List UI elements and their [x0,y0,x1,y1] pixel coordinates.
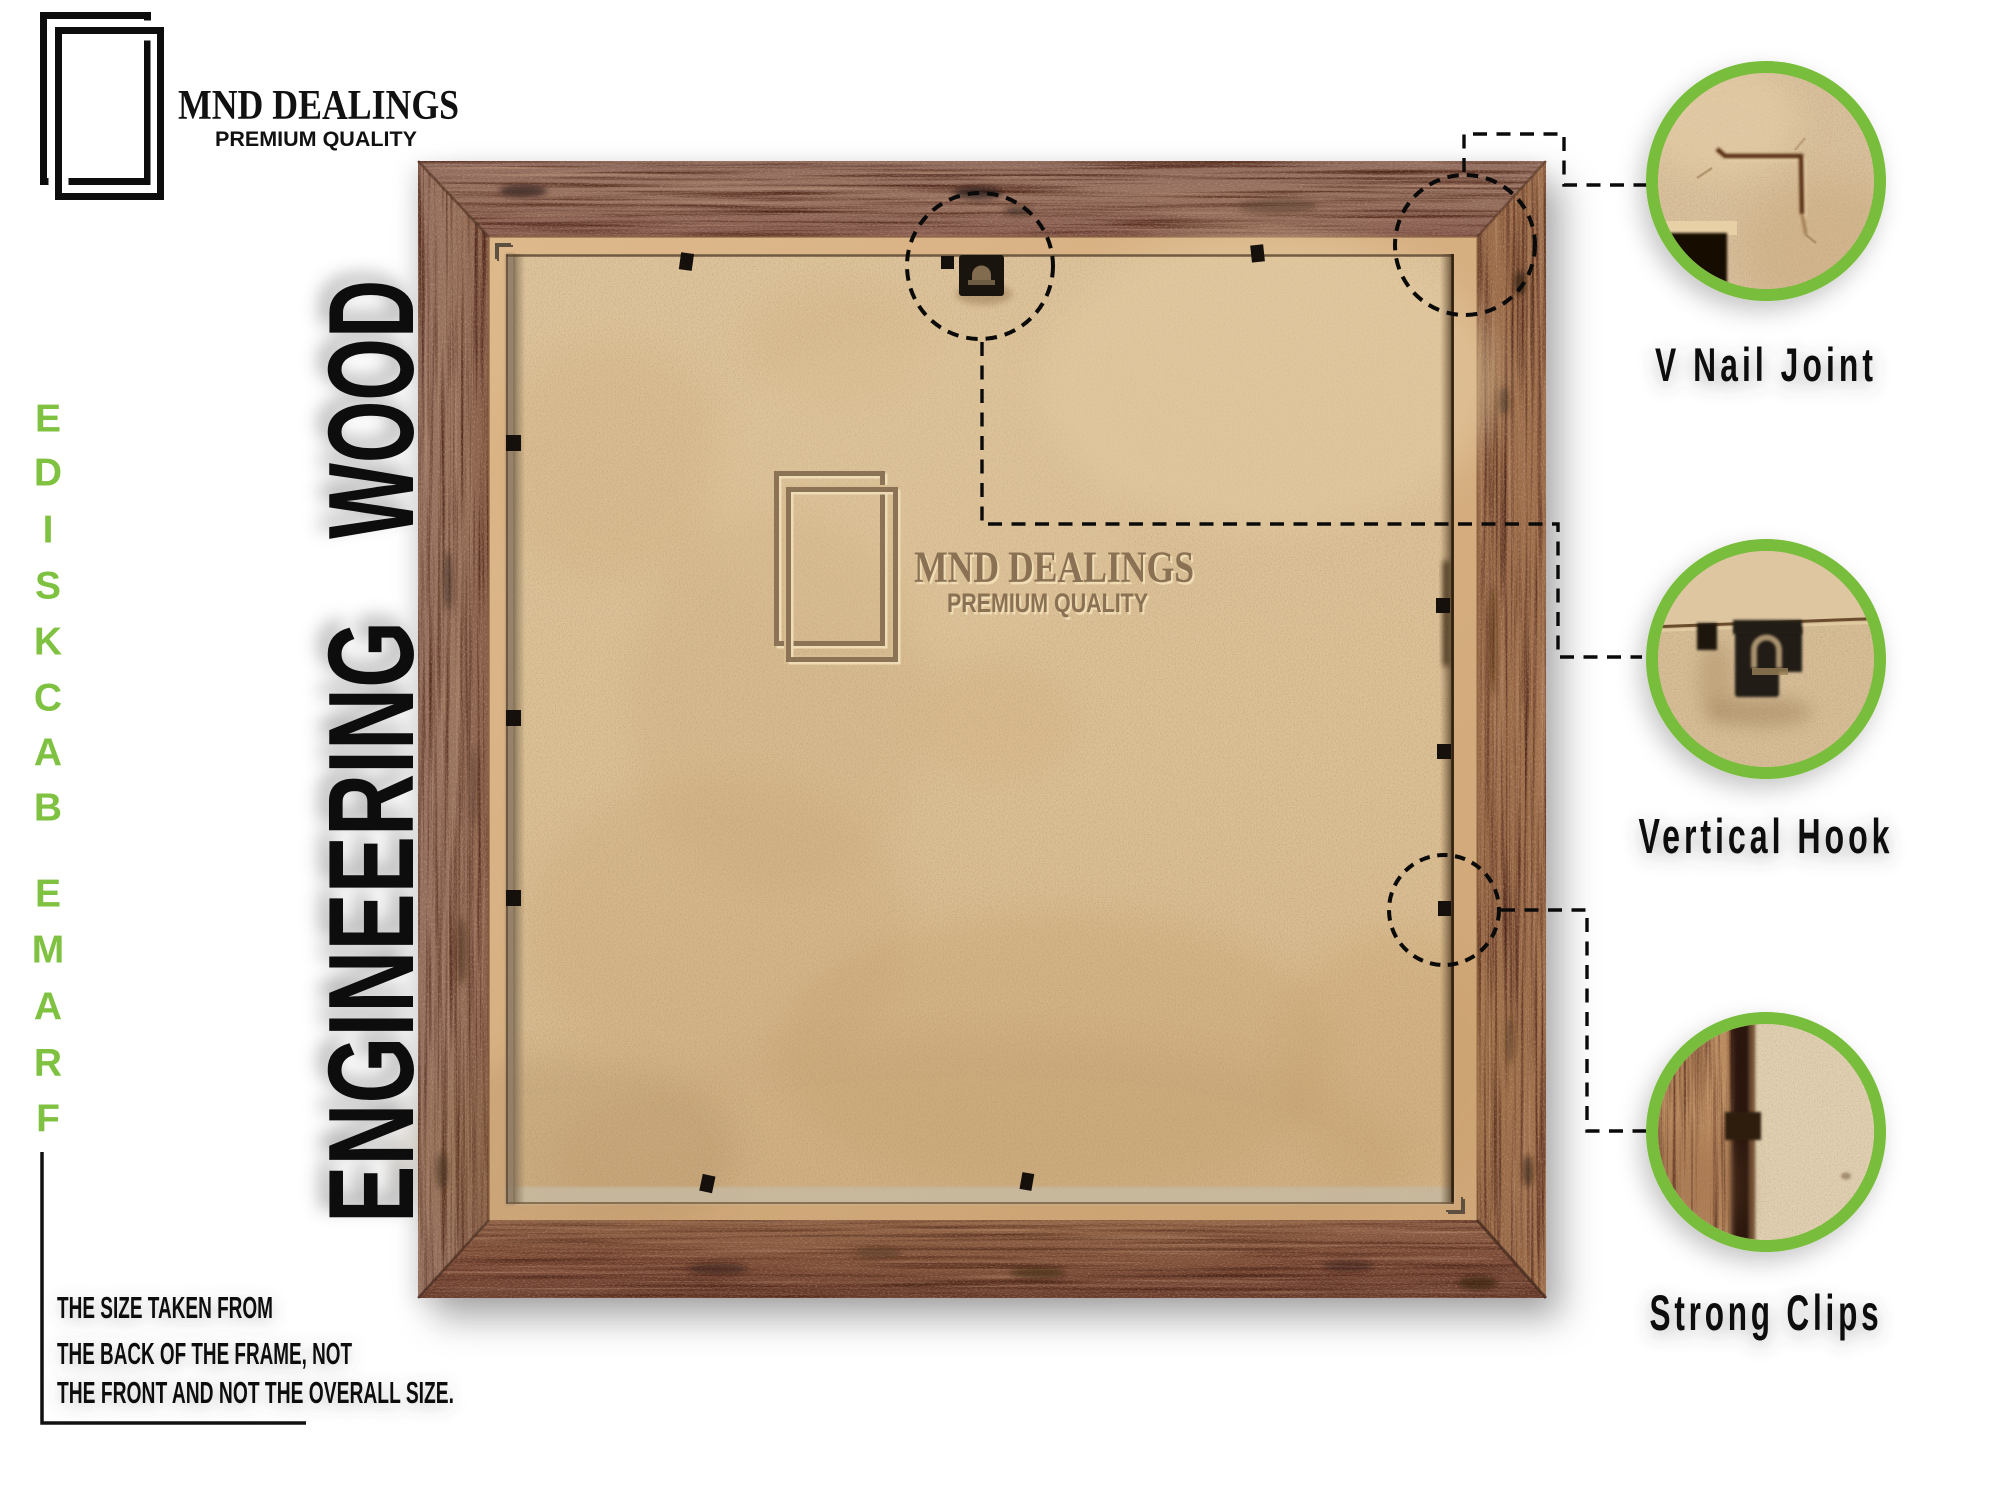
svg-text:PREMIUM QUALITY: PREMIUM QUALITY [215,128,417,151]
svg-text:V Nail Joint: V Nail Joint [1655,338,1877,391]
svg-text:B: B [34,787,62,830]
svg-text:E: E [35,873,61,916]
svg-text:WOOD: WOOD [303,280,439,539]
svg-text:A: A [34,732,62,775]
svg-text:E: E [35,398,61,441]
svg-text:A: A [34,986,62,1029]
svg-text:THE FRONT AND NOT THE OVERALL: THE FRONT AND NOT THE OVERALL SIZE. [57,1376,454,1410]
svg-text:M: M [32,929,65,972]
svg-text:THE SIZE TAKEN FROM: THE SIZE TAKEN FROM [57,1291,273,1325]
svg-text:C: C [34,677,62,720]
svg-text:MND DEALINGS: MND DEALINGS [178,83,459,129]
svg-text:MND DEALINGS: MND DEALINGS [914,543,1194,592]
svg-text:R: R [34,1042,62,1085]
svg-text:Vertical Hook: Vertical Hook [1639,810,1894,864]
svg-text:I: I [43,509,54,552]
svg-text:THE BACK OF THE FRAME, NOT: THE BACK OF THE FRAME, NOT [57,1337,352,1371]
svg-text:S: S [35,565,61,608]
svg-text:K: K [34,621,62,664]
svg-text:Strong Clips: Strong Clips [1650,1285,1883,1341]
svg-text:F: F [36,1098,60,1141]
svg-text:PREMIUM QUALITY: PREMIUM QUALITY [947,588,1148,618]
svg-text:D: D [34,452,62,495]
svg-text:ENGINEERING: ENGINEERING [303,621,439,1223]
